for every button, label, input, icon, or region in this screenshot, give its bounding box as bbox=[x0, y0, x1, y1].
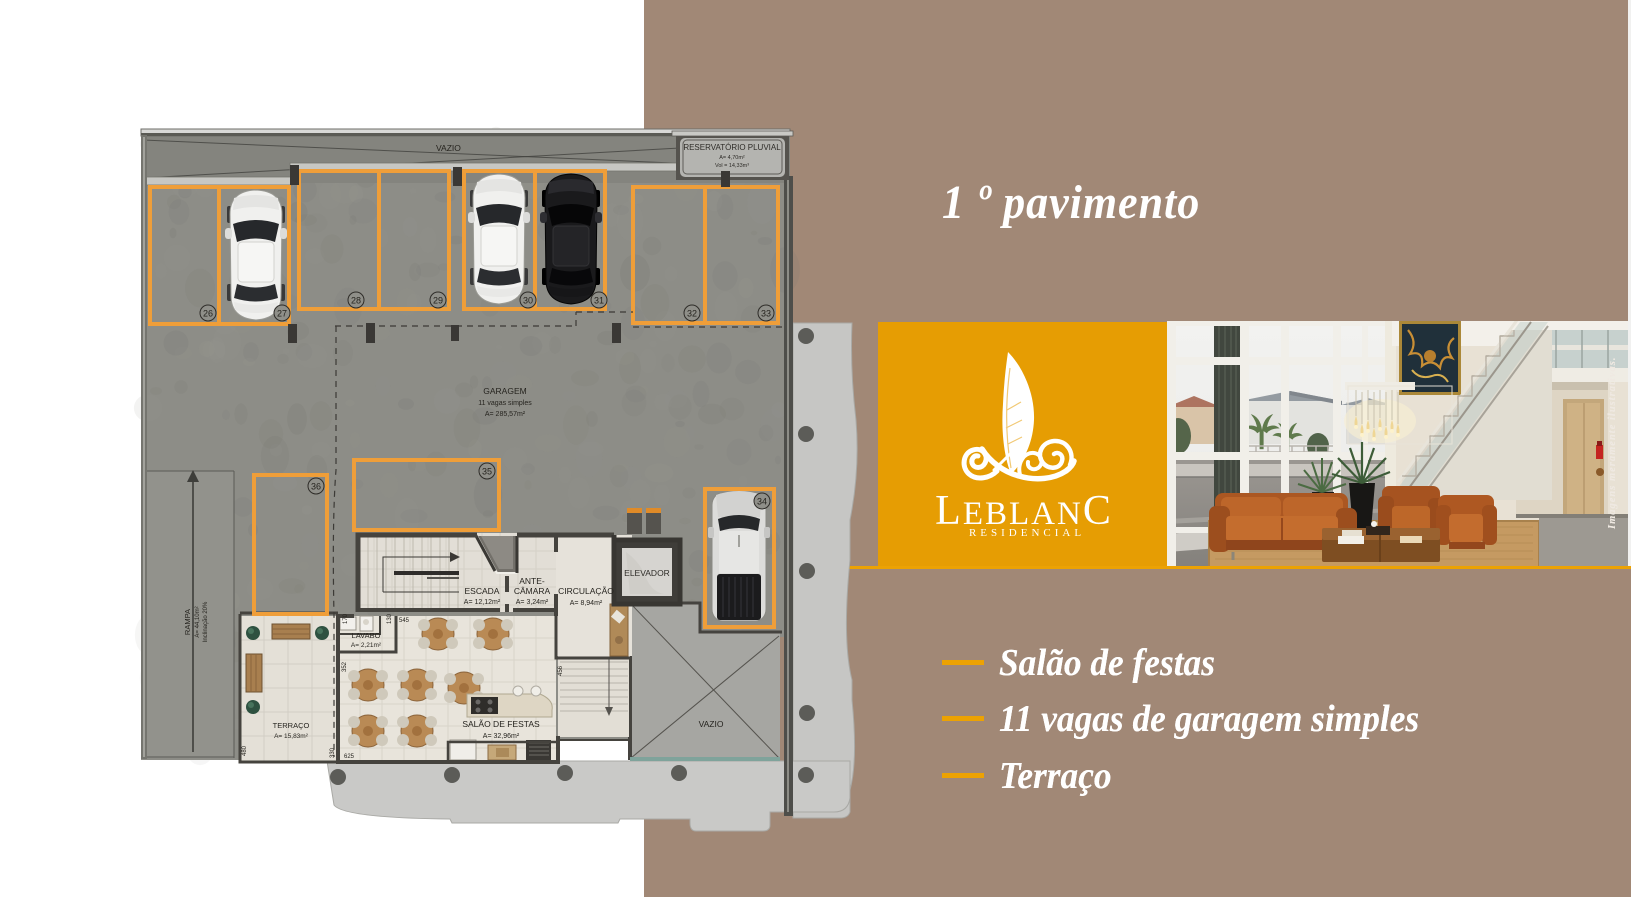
svg-text:27: 27 bbox=[277, 309, 287, 319]
svg-text:Inclinação 20%: Inclinação 20% bbox=[203, 601, 209, 642]
svg-text:26: 26 bbox=[203, 309, 213, 319]
svg-text:11 vagas simples: 11 vagas simples bbox=[478, 400, 532, 407]
svg-text:CIRCULAÇÃO: CIRCULAÇÃO bbox=[558, 586, 614, 596]
svg-text:34: 34 bbox=[757, 497, 767, 507]
svg-text:28: 28 bbox=[351, 296, 361, 306]
svg-text:545: 545 bbox=[399, 618, 410, 624]
svg-text:A= 3,24m²: A= 3,24m² bbox=[516, 599, 549, 606]
svg-text:CÂMARA: CÂMARA bbox=[514, 586, 551, 596]
svg-text:456: 456 bbox=[558, 665, 564, 676]
svg-text:480: 480 bbox=[242, 745, 248, 756]
svg-text:29: 29 bbox=[433, 296, 443, 306]
svg-text:A= 44,10m²: A= 44,10m² bbox=[195, 606, 201, 637]
svg-text:A= 285,57m²: A= 285,57m² bbox=[485, 411, 526, 418]
svg-text:A= 12,12m²: A= 12,12m² bbox=[464, 599, 501, 606]
svg-text:RESERVATÓRIO PLUVIAL: RESERVATÓRIO PLUVIAL bbox=[683, 143, 781, 152]
svg-text:A= 4,70m²: A= 4,70m² bbox=[719, 155, 745, 161]
svg-text:VAZIO: VAZIO bbox=[699, 719, 724, 729]
svg-text:RESIDENCIAL: RESIDENCIAL bbox=[969, 527, 1085, 539]
svg-text:ESCADA: ESCADA bbox=[465, 586, 500, 596]
svg-text:32: 32 bbox=[687, 309, 697, 319]
svg-text:33: 33 bbox=[761, 309, 771, 319]
svg-text:170: 170 bbox=[343, 613, 349, 624]
svg-text:TERRAÇO: TERRAÇO bbox=[273, 721, 310, 730]
svg-text:ELEVADOR: ELEVADOR bbox=[624, 568, 670, 578]
svg-text:A= 15,83m²: A= 15,83m² bbox=[274, 733, 309, 740]
svg-text:VAZIO: VAZIO bbox=[436, 143, 461, 153]
svg-text:Vol = 14,33m³: Vol = 14,33m³ bbox=[715, 163, 749, 169]
svg-text:36: 36 bbox=[311, 482, 321, 492]
svg-text:GARAGEM: GARAGEM bbox=[483, 386, 526, 396]
svg-text:330: 330 bbox=[330, 747, 336, 758]
svg-text:LAVABO: LAVABO bbox=[352, 631, 381, 640]
svg-text:130: 130 bbox=[387, 613, 393, 624]
svg-text:A= 2,21m²: A= 2,21m² bbox=[351, 642, 382, 649]
svg-text:352: 352 bbox=[342, 661, 348, 672]
svg-text:31: 31 bbox=[594, 296, 604, 306]
svg-text:A= 8,94m²: A= 8,94m² bbox=[570, 600, 603, 607]
svg-text:35: 35 bbox=[482, 467, 492, 477]
svg-text:A= 32,96m²: A= 32,96m² bbox=[483, 733, 520, 740]
svg-text:ANTE-: ANTE- bbox=[519, 576, 545, 586]
svg-text:RAMPA: RAMPA bbox=[183, 609, 192, 635]
svg-text:30: 30 bbox=[523, 296, 533, 306]
svg-text:625: 625 bbox=[344, 754, 355, 760]
svg-text:SALÃO DE FESTAS: SALÃO DE FESTAS bbox=[462, 719, 540, 729]
